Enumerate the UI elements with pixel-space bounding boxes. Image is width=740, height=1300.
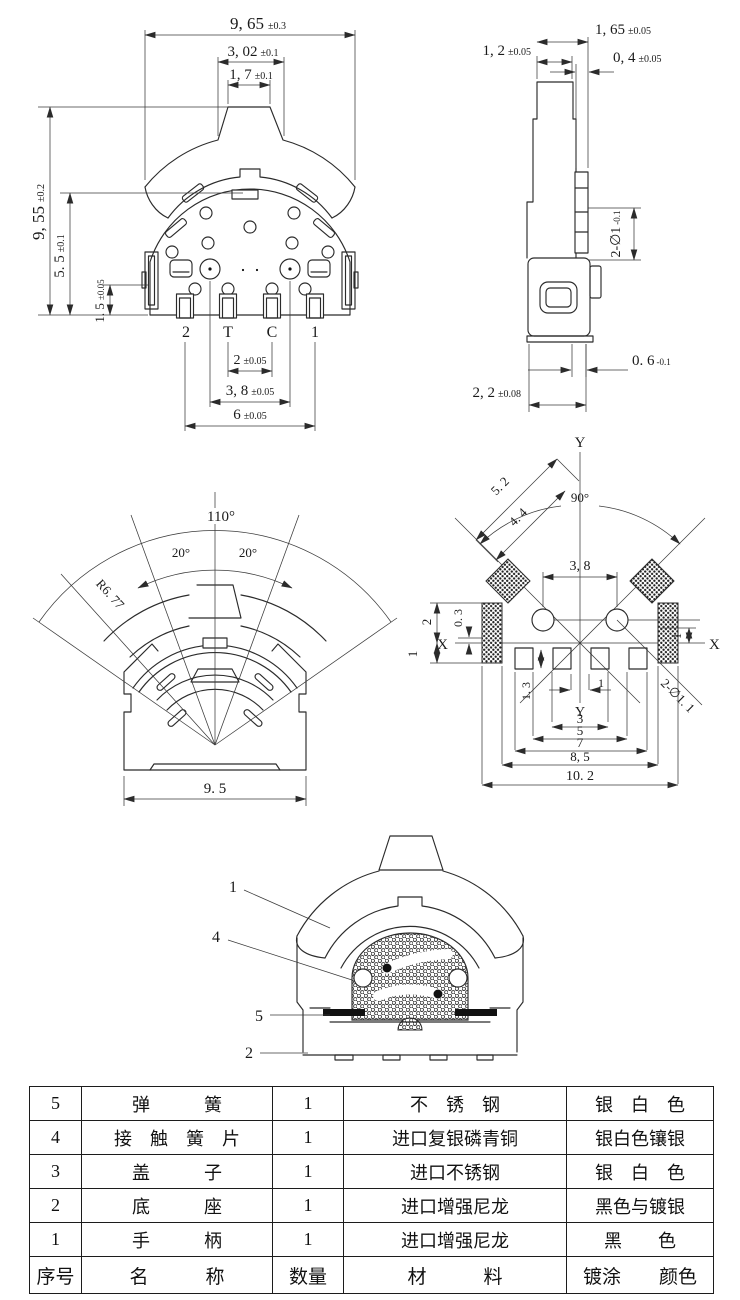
table-row: 3 盖 子 1 进口不锈钢 银 白 色 — [30, 1155, 714, 1189]
section-callouts: 1 4 5 2 — [212, 879, 352, 1062]
dim-diag-outer: 5. 2 — [488, 474, 512, 498]
cell-qty: 1 — [273, 1087, 344, 1121]
cell-qty: 1 — [273, 1155, 344, 1189]
dim-right-1: 1 — [670, 633, 684, 639]
front-dimensions: 9, 65±0.3 3, 02±0.1 1, 7±0.1 9, 55±0.2 5… — [29, 14, 355, 431]
cell-no: 3 — [30, 1155, 82, 1189]
side-view: 1, 2±0.05 1, 65±0.05 0, 4±0.05 2-∅1-0.1 … — [473, 22, 671, 412]
dim-radius: R6. 77 — [93, 576, 128, 612]
cell-no: 1 — [30, 1223, 82, 1257]
section-part-outline — [297, 836, 524, 1060]
dim-side-top-width: 1, 65±0.05 — [595, 22, 651, 38]
header-name: 名 称 — [82, 1257, 273, 1294]
table-row: 2 底 座 1 进口增强尼龙 黑色与镀银 — [30, 1189, 714, 1223]
cell-color: 银 白 色 — [567, 1155, 714, 1189]
cell-color: 银 白 色 — [567, 1087, 714, 1121]
cell-color: 黑色与镀银 — [567, 1189, 714, 1223]
dim-p85: 8, 5 — [570, 749, 590, 764]
parts-table: 5 弹 簧 1 不 锈 钢 银 白 色 4 接 触 簧 片 1 进口复银磷青铜 … — [29, 1086, 714, 1294]
cell-no: 4 — [30, 1121, 82, 1155]
dim-front-pitch-tc: 2±0.05 — [234, 353, 267, 368]
table-row: 1 手 柄 1 进口增强尼龙 黑 色 — [30, 1223, 714, 1257]
header-no: 序号 — [30, 1257, 82, 1294]
cell-material: 进口增强尼龙 — [344, 1223, 567, 1257]
dim-front-total-width: 9, 65±0.3 — [230, 14, 286, 33]
cell-qty: 1 — [273, 1121, 344, 1155]
header-color: 镀涂 颜色 — [567, 1257, 714, 1294]
dim-front-pin-height: 1. 5±0.05 — [92, 279, 107, 323]
table-header-row: 序号 名 称 数量 材 料 镀涂 颜色 — [30, 1257, 714, 1294]
dim-front-total-height: 9, 55±0.2 — [29, 184, 48, 240]
cell-no: 5 — [30, 1087, 82, 1121]
footprint-view: Y Y X X 90° 5. 2 4. 4 3, 8 2 1 0. 3 1 — [405, 435, 720, 785]
dim-pad-above-axis: 2 — [419, 619, 434, 626]
angle-dimensions: 110° 20° 20° R6. 77 9. 5 — [33, 492, 397, 806]
dim-side-knob-width: 1, 2±0.05 — [483, 43, 532, 59]
dim-detent-angle-left: 20° — [172, 545, 190, 560]
dim-base-width: 9. 5 — [204, 781, 227, 797]
table-row: 4 接 触 簧 片 1 进口复银磷青铜 银白色镶银 — [30, 1121, 714, 1155]
dim-90-angle: 90° — [571, 490, 589, 505]
dim-front-pitch-rivets: 3, 8±0.05 — [226, 383, 275, 399]
dim-front-body-height: 5. 5±0.1 — [52, 234, 68, 278]
dim-pad-below-axis: 1 — [405, 651, 420, 658]
cell-color: 银白色镶银 — [567, 1121, 714, 1155]
dim-side-step-width: 0, 4±0.05 — [613, 50, 662, 66]
cell-material: 不 锈 钢 — [344, 1087, 567, 1121]
header-qty: 数量 — [273, 1257, 344, 1294]
dim-pin-height: 1. 3 — [519, 682, 533, 700]
cell-name: 弹 簧 — [82, 1087, 273, 1121]
front-part-outline — [142, 107, 358, 318]
callout-4-contact: 4 — [212, 929, 220, 946]
side-part-outline — [527, 82, 601, 342]
cell-name: 手 柄 — [82, 1223, 273, 1257]
callout-1-handle: 1 — [229, 879, 237, 896]
dim-offset-03: 0. 3 — [451, 609, 465, 627]
cell-no: 2 — [30, 1189, 82, 1223]
pin-label-c: C — [267, 324, 278, 341]
engineering-drawing-sheet: 9, 65±0.3 3, 02±0.1 1, 7±0.1 9, 55±0.2 5… — [0, 0, 740, 1300]
cell-name: 底 座 — [82, 1189, 273, 1223]
angle-view: 110° 20° 20° R6. 77 9. 5 — [33, 492, 397, 806]
dim-front-knob-width: 1, 7±0.1 — [229, 67, 273, 83]
cell-material: 进口复银磷青铜 — [344, 1121, 567, 1155]
cell-qty: 1 — [273, 1223, 344, 1257]
cell-color: 黑 色 — [567, 1223, 714, 1257]
front-view: 9, 65±0.3 3, 02±0.1 1, 7±0.1 9, 55±0.2 5… — [29, 14, 358, 431]
dim-detent-angle-right: 20° — [239, 545, 257, 560]
dim-p102: 10. 2 — [566, 769, 594, 784]
dim-side-pin-thickness: 0. 6-0.1 — [632, 353, 671, 369]
cell-material: 进口不锈钢 — [344, 1155, 567, 1189]
axis-y-top-label: Y — [575, 435, 586, 451]
cell-name: 接 触 簧 片 — [82, 1121, 273, 1155]
table-row: 5 弹 簧 1 不 锈 钢 银 白 色 — [30, 1087, 714, 1121]
side-dimensions: 1, 2±0.05 1, 65±0.05 0, 4±0.05 2-∅1-0.1 … — [473, 22, 671, 412]
dim-side-holes: 2-∅1-0.1 — [609, 210, 624, 257]
pin-label-t: T — [223, 324, 233, 341]
axis-x-left-label: X — [437, 637, 448, 653]
pin-label-2: 2 — [182, 324, 190, 341]
dim-diag-inner: 4. 4 — [506, 504, 531, 529]
header-material: 材 料 — [344, 1257, 567, 1294]
dim-front-mid-width: 3, 02±0.1 — [228, 44, 279, 60]
cell-name: 盖 子 — [82, 1155, 273, 1189]
dim-front-pitch-outer: 6±0.05 — [233, 407, 267, 423]
cell-qty: 1 — [273, 1189, 344, 1223]
dim-circle-pitch: 3, 8 — [570, 559, 591, 574]
section-view: 1 4 5 2 — [212, 836, 523, 1062]
dim-side-base-width: 2, 2±0.08 — [473, 385, 522, 401]
drawing-canvas: 9, 65±0.3 3, 02±0.1 1, 7±0.1 9, 55±0.2 5… — [0, 0, 740, 1086]
cell-material: 进口增强尼龙 — [344, 1189, 567, 1223]
dim-sweep-angle: 110° — [207, 509, 235, 525]
dim-p1: 1 — [598, 676, 604, 690]
callout-2-base: 2 — [245, 1045, 253, 1062]
axis-x-right-label: X — [709, 637, 720, 653]
callout-5-spring: 5 — [255, 1008, 263, 1025]
dim-p7: 7 — [577, 735, 584, 750]
pin-label-1: 1 — [311, 324, 319, 341]
